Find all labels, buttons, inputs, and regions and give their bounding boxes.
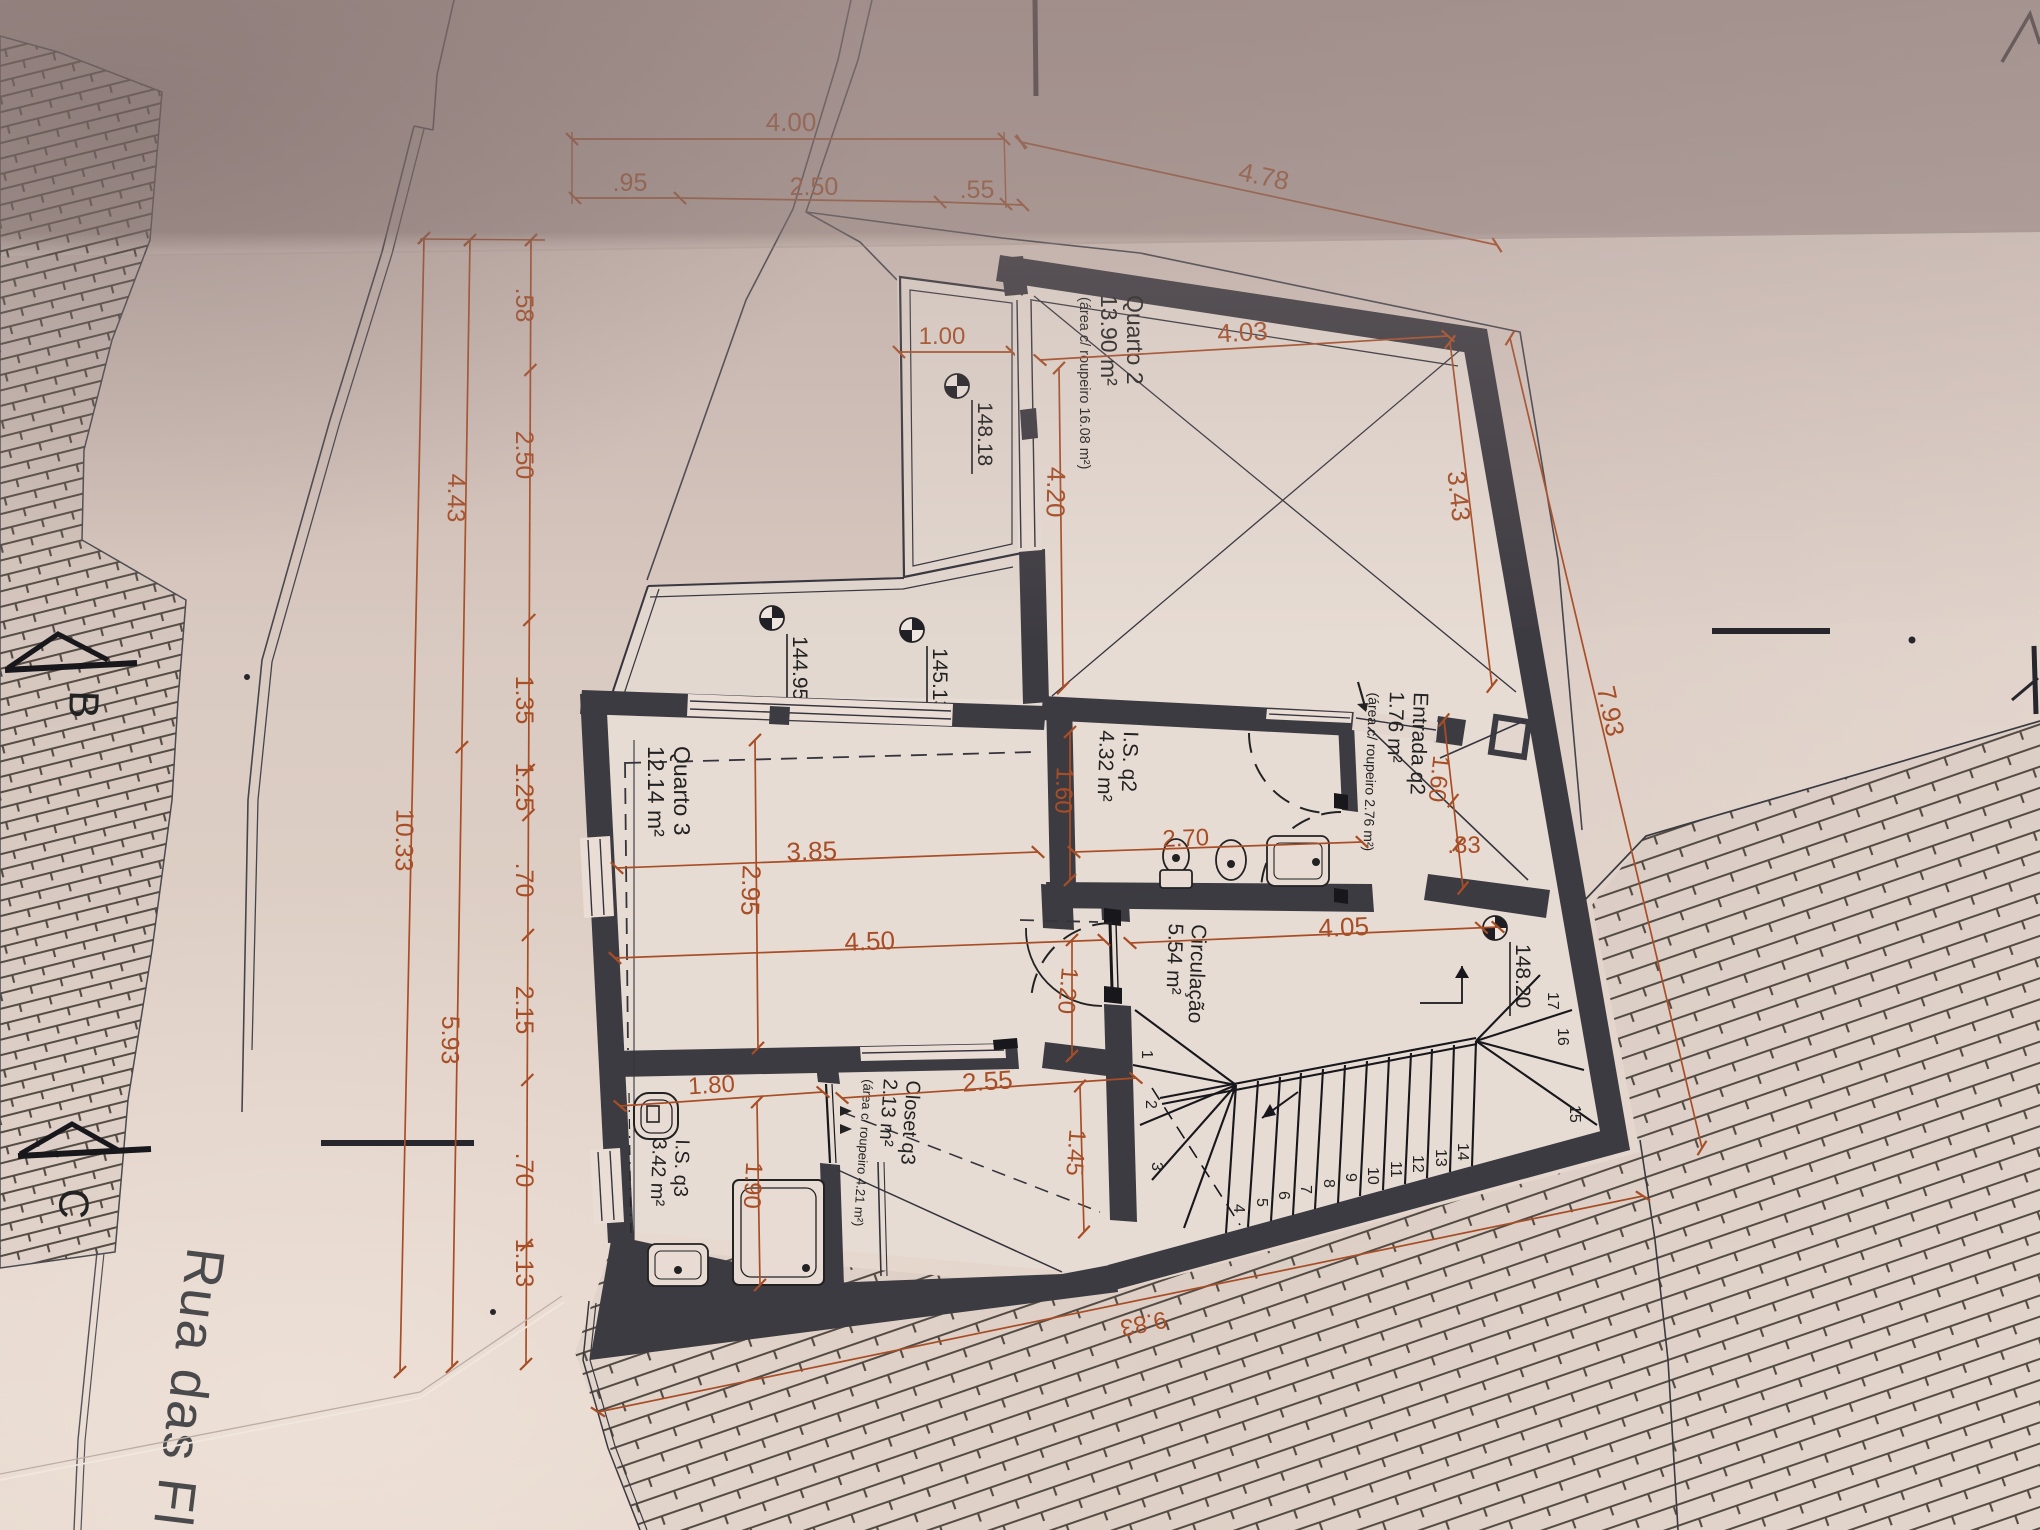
svg-text:1.20: 1.20 [1052, 966, 1083, 1015]
svg-text:3: 3 [1148, 1162, 1165, 1171]
svg-text:1.35: 1.35 [510, 676, 538, 725]
svg-text:1.45: 1.45 [1060, 1128, 1090, 1176]
svg-text:15: 15 [1566, 1105, 1583, 1123]
svg-text:12: 12 [1409, 1155, 1426, 1173]
svg-text:C: C [50, 1188, 98, 1220]
svg-text:6: 6 [1275, 1191, 1292, 1200]
svg-text:4.05: 4.05 [1318, 911, 1370, 943]
svg-text:16: 16 [1554, 1028, 1571, 1046]
svg-text:2.95: 2.95 [735, 865, 767, 917]
svg-text:I.S. q3: I.S. q3 [669, 1139, 693, 1198]
svg-text:7: 7 [1297, 1185, 1314, 1194]
svg-text:5.54 m²: 5.54 m² [1162, 923, 1187, 995]
svg-text:13: 13 [1432, 1149, 1449, 1167]
svg-text:2: 2 [1142, 1100, 1159, 1109]
svg-text:10.33: 10.33 [389, 809, 418, 872]
svg-text:.70: .70 [510, 1153, 538, 1188]
svg-text:144.95: 144.95 [788, 636, 811, 700]
svg-text:1.60: 1.60 [1049, 766, 1078, 814]
svg-text:2.15: 2.15 [510, 986, 538, 1035]
svg-text:1.60: 1.60 [1423, 754, 1455, 803]
svg-text:1: 1 [1138, 1050, 1155, 1059]
svg-text:.70: .70 [510, 863, 538, 898]
svg-text:1.76 m²: 1.76 m² [1383, 691, 1408, 763]
svg-text:I.S. q2: I.S. q2 [1117, 731, 1142, 792]
svg-text:11: 11 [1387, 1161, 1404, 1178]
svg-text:1.13: 1.13 [510, 1239, 538, 1288]
svg-text:Circulação: Circulação [1184, 924, 1210, 1024]
svg-text:1.25: 1.25 [510, 763, 538, 812]
svg-text:.83: .83 [1447, 832, 1480, 859]
svg-text:1.80: 1.80 [687, 1071, 735, 1101]
svg-text:1.90: 1.90 [738, 1161, 767, 1209]
svg-text:148.20: 148.20 [1511, 944, 1534, 1008]
svg-text:9: 9 [1342, 1173, 1359, 1182]
svg-text:3.85: 3.85 [786, 835, 838, 867]
svg-text:5.93: 5.93 [436, 1016, 465, 1065]
svg-text:3.42 m²: 3.42 m² [646, 1138, 670, 1207]
svg-text:17: 17 [1544, 992, 1561, 1010]
svg-text:12.14 m²: 12.14 m² [643, 746, 669, 837]
svg-text:8: 8 [1320, 1179, 1337, 1188]
svg-text:10: 10 [1364, 1167, 1381, 1185]
svg-text:Quarto 3: Quarto 3 [669, 746, 695, 836]
svg-text:14: 14 [1454, 1143, 1471, 1161]
svg-text:4.32 m²: 4.32 m² [1093, 730, 1118, 802]
svg-text:4.50: 4.50 [844, 925, 896, 957]
svg-text:4: 4 [1230, 1204, 1247, 1213]
svg-text:5: 5 [1253, 1198, 1270, 1207]
svg-text:2.70: 2.70 [1162, 824, 1210, 853]
svg-text:2.55: 2.55 [961, 1064, 1014, 1097]
svg-text:B: B [60, 690, 108, 720]
